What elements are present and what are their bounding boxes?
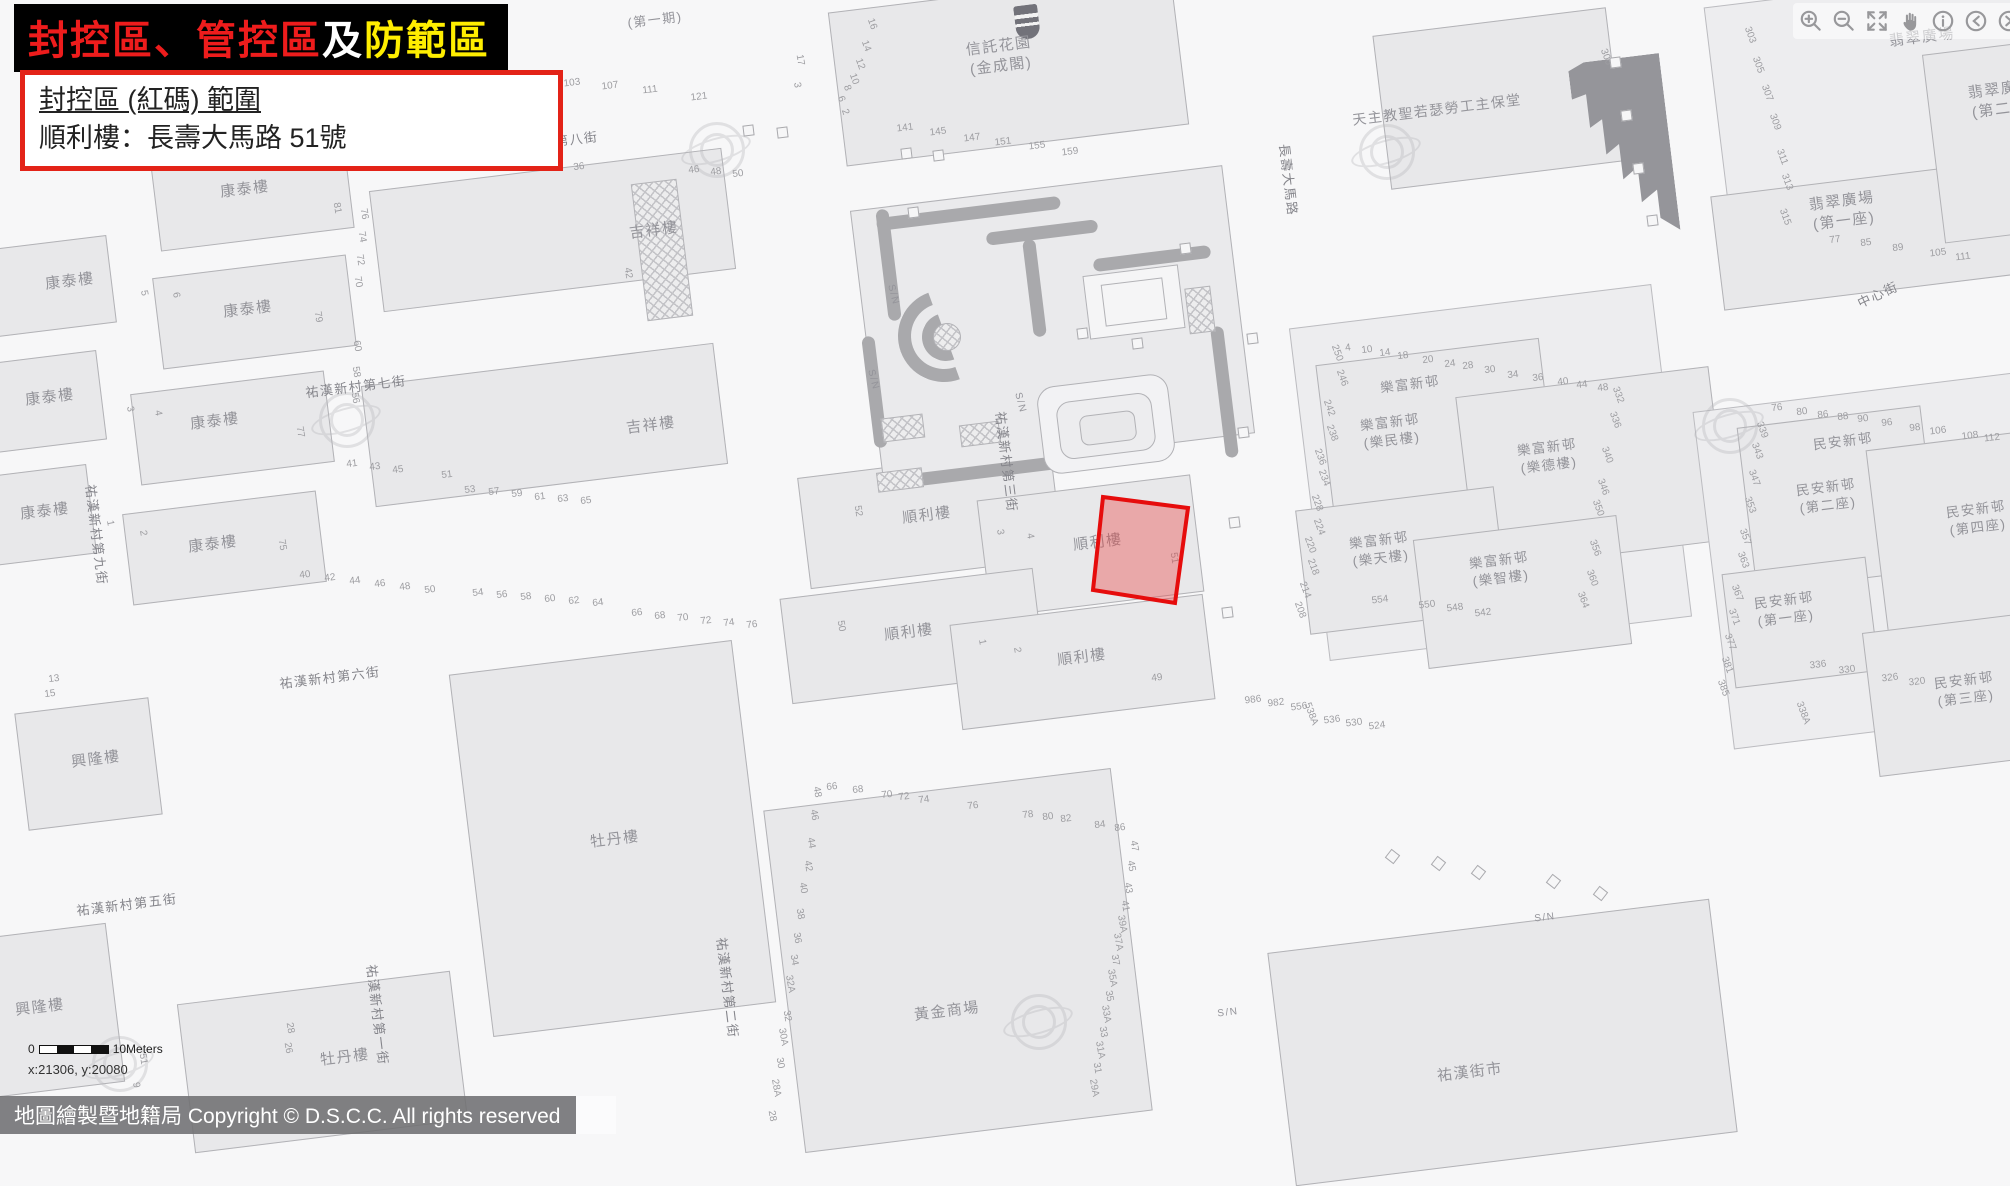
- map-toolbar: [1793, 3, 2010, 39]
- street-label: 祐漢新村第五街: [76, 890, 179, 920]
- planter-square: [1609, 56, 1621, 68]
- house-number: 52: [852, 505, 865, 518]
- house-number: 81: [331, 202, 344, 215]
- house-number: 70: [881, 789, 893, 801]
- house-number: 46: [808, 809, 821, 822]
- arrow-right-circle-icon: [1996, 8, 2010, 34]
- house-number: 64: [592, 597, 604, 609]
- house-number: 70: [677, 612, 689, 624]
- info-line-heading: 封控區 (紅碼) 範圍: [39, 81, 544, 119]
- house-number: 82: [1060, 813, 1072, 825]
- map-block-park-hatch-1: [1184, 286, 1215, 335]
- map-block-park-hatch-2: [881, 414, 926, 443]
- house-number: 36: [573, 161, 585, 173]
- house-number: 45: [1125, 860, 1138, 873]
- house-number: 40: [299, 569, 311, 581]
- house-number: 41: [346, 458, 358, 470]
- house-number: 18: [1397, 350, 1409, 362]
- house-number: 35: [1103, 990, 1116, 1003]
- house-number: 65: [580, 495, 592, 507]
- planter-square: [900, 147, 912, 159]
- house-number: 159: [1061, 146, 1079, 159]
- house-number: 66: [631, 607, 643, 619]
- house-number: 58: [520, 591, 532, 603]
- planter-square: [1646, 214, 1658, 226]
- house-number: 89: [1892, 242, 1904, 254]
- planter-square: [1076, 327, 1088, 339]
- house-number: 151: [994, 136, 1012, 149]
- pan-button[interactable]: [1896, 7, 1924, 36]
- house-number: 20: [1422, 354, 1434, 366]
- planter-square: [1593, 886, 1608, 901]
- house-number: 60: [544, 593, 556, 605]
- house-number: 48: [811, 786, 824, 799]
- house-number: 28: [766, 1110, 779, 1123]
- house-number: 98: [1909, 422, 1921, 434]
- cursor-coordinates: x:21306, y:20080: [28, 1062, 128, 1077]
- house-number: 42: [622, 267, 635, 280]
- map-block-sports-court-inner: [1101, 277, 1168, 326]
- building-label: 民安新邨 (第三座): [1933, 668, 1997, 711]
- house-number: 80: [1042, 811, 1054, 823]
- house-number: 330: [1838, 664, 1856, 677]
- house-number: 88: [1837, 411, 1849, 423]
- house-number: 13: [48, 673, 60, 685]
- scale-zero-label: 0: [28, 1042, 35, 1056]
- house-number: 26: [282, 1042, 295, 1055]
- house-number: 17: [794, 54, 807, 67]
- house-number: 50: [835, 620, 848, 633]
- house-number: 42: [802, 860, 815, 873]
- house-number: 15: [44, 688, 56, 700]
- house-number: 155: [1028, 140, 1046, 153]
- info-circle-icon: [1930, 8, 1956, 34]
- house-number: 44: [1576, 379, 1588, 391]
- street-label: 祐漢新村第六街: [279, 663, 382, 693]
- house-number: 85: [1860, 237, 1872, 249]
- planter-square: [1246, 332, 1258, 344]
- house-number: 86: [1114, 822, 1126, 834]
- house-number: 41: [1119, 900, 1132, 913]
- house-number: 78: [1022, 809, 1034, 821]
- building-label: (第一期): [627, 8, 684, 32]
- house-number: 111: [642, 84, 658, 97]
- house-number: 34: [1507, 369, 1519, 381]
- map-app: { "banner": {"segments": [ {"text": "封控區…: [0, 0, 2010, 1135]
- house-number: 76: [1771, 402, 1783, 414]
- house-number: 47: [1128, 840, 1141, 853]
- house-number: 108: [1961, 430, 1979, 443]
- building-label: 樂富新邨 (樂民樓): [1359, 410, 1423, 453]
- house-number: 30: [774, 1057, 787, 1070]
- house-number: 4: [1345, 342, 1352, 354]
- identify-button[interactable]: [1929, 7, 1957, 36]
- house-number: 1: [104, 519, 116, 526]
- house-number: 74: [356, 231, 369, 244]
- house-number: 63: [557, 493, 569, 505]
- house-number: 74: [918, 794, 930, 806]
- house-number: 548: [1446, 602, 1464, 615]
- house-number: 72: [354, 254, 367, 267]
- scale-bar-graphic: [39, 1045, 109, 1054]
- house-number: 75: [276, 539, 289, 552]
- zoom-in-button[interactable]: [1797, 7, 1825, 36]
- house-number: 141: [896, 122, 914, 135]
- house-number: 50: [732, 168, 744, 180]
- previous-extent-button[interactable]: [1962, 7, 1990, 36]
- lockdown-info-box: 封控區 (紅碼) 範圍 順利樓：長壽大馬路 51號: [20, 70, 563, 171]
- title-segment: 防範區: [364, 19, 490, 63]
- building-label: 民安新邨 (第四座): [1945, 497, 2009, 540]
- building-label: 樂富新邨 (樂德樓): [1516, 435, 1580, 478]
- planter-square: [1237, 426, 1249, 438]
- house-number: 80: [1796, 406, 1808, 418]
- house-number: 145: [929, 126, 947, 139]
- house-number: 554: [1371, 594, 1389, 607]
- building-label: 樂富新邨 (樂智樓): [1468, 548, 1532, 591]
- house-number: 524: [1368, 720, 1386, 733]
- magnifier-plus-icon: [1798, 8, 1824, 34]
- house-number: 76: [746, 619, 758, 631]
- house-number: 66: [826, 781, 838, 793]
- building-label: 樂富新邨 (樂天樓): [1348, 528, 1412, 571]
- house-number: 550: [1418, 599, 1436, 612]
- planter-square: [1632, 162, 1644, 174]
- title-segment: 封控區、管控區: [28, 19, 322, 63]
- planter-square: [776, 126, 788, 138]
- house-number: 986: [1244, 694, 1262, 707]
- dscc-watermark: [1350, 122, 1420, 178]
- house-number: 31: [1091, 1062, 1104, 1075]
- house-number: 77: [294, 426, 307, 439]
- house-number: 48: [399, 581, 411, 593]
- house-number: 76: [358, 208, 371, 221]
- house-number: 982: [1267, 697, 1285, 710]
- house-number: 57: [488, 486, 500, 498]
- building-label: 翡翠廣場 (第二座): [1967, 76, 2010, 124]
- house-number: 72: [700, 615, 712, 627]
- house-number: 48: [710, 166, 722, 178]
- house-number: 54: [472, 587, 484, 599]
- scale-max-label: 10Meters: [113, 1042, 163, 1056]
- house-number: 40: [797, 882, 810, 895]
- house-number: 326: [1881, 672, 1899, 685]
- house-number: 61: [534, 491, 546, 503]
- house-number: 24: [1444, 358, 1456, 370]
- planter-square: [932, 149, 944, 161]
- next-extent-button[interactable]: [1995, 7, 2010, 36]
- planter-square: [1221, 606, 1233, 618]
- expand-arrows-icon: [1864, 8, 1890, 34]
- dscc-watermark: [1002, 992, 1072, 1048]
- house-number: 49: [1151, 672, 1163, 684]
- house-number: 68: [852, 784, 864, 796]
- house-number: 103: [563, 77, 581, 90]
- house-number: 50: [424, 584, 436, 596]
- planter-square: [1228, 516, 1240, 528]
- planter-square: [1471, 865, 1486, 880]
- house-number: 46: [374, 578, 386, 590]
- house-number: 536: [1323, 714, 1341, 727]
- house-number: 84: [1094, 819, 1106, 831]
- map-block-market: [1267, 898, 1737, 1185]
- house-number: 79: [312, 311, 325, 324]
- house-number: 70: [352, 276, 365, 289]
- house-number: 45: [392, 464, 404, 476]
- building-label: 翡翠廣場 (第一座): [1808, 188, 1878, 236]
- house-number: 336: [1809, 659, 1827, 672]
- building-label: 民安新邨 (第一座): [1753, 588, 1817, 631]
- house-number: 42: [324, 572, 336, 584]
- house-number: 5: [138, 289, 150, 296]
- house-number: 38: [794, 908, 807, 921]
- house-number: 48: [1597, 382, 1609, 394]
- info-line-address: 順利樓：長壽大馬路 51號: [39, 119, 544, 157]
- planter-square: [1385, 849, 1400, 864]
- house-number: 10: [1361, 344, 1373, 356]
- planter-square: [1546, 874, 1561, 889]
- scale-bar: 0 10Meters: [28, 1042, 163, 1056]
- house-number: 44: [805, 837, 818, 850]
- house-number: 542: [1474, 607, 1492, 620]
- house-number: 36: [791, 932, 804, 945]
- street-label: 長壽大馬路: [1275, 143, 1301, 217]
- house-number: 56: [496, 589, 508, 601]
- title-segment: 及: [322, 19, 364, 63]
- house-number: 72: [898, 791, 910, 803]
- house-number: 77: [1829, 234, 1841, 246]
- house-number: 68: [654, 610, 666, 622]
- building-label: 信託花園 (金成閣): [965, 33, 1035, 81]
- house-number: 32: [781, 1010, 794, 1023]
- house-number: 14: [1379, 347, 1391, 359]
- house-number: 43: [1122, 882, 1135, 895]
- house-number: 86: [1817, 409, 1829, 421]
- house-number: 105: [1929, 247, 1947, 260]
- planter-square: [1131, 337, 1143, 349]
- house-number: 44: [349, 575, 361, 587]
- planter-square: [1179, 242, 1191, 254]
- house-number: 33: [1097, 1026, 1110, 1039]
- planter-square: [1620, 109, 1632, 121]
- full-extent-button[interactable]: [1863, 7, 1891, 36]
- house-number: 30: [1484, 364, 1496, 376]
- house-number: 107: [601, 80, 619, 93]
- house-number: 28: [284, 1022, 297, 1035]
- house-number: 53: [464, 484, 476, 496]
- house-number: 111: [1955, 251, 1971, 264]
- zoom-out-button[interactable]: [1830, 7, 1858, 36]
- map-block-lefu-lezhi: [1412, 515, 1631, 669]
- house-number: 28A: [769, 1078, 783, 1097]
- planter-square: [742, 124, 754, 136]
- magnifier-minus-icon: [1831, 8, 1857, 34]
- house-number: 51: [1168, 552, 1181, 565]
- house-number: 112: [1983, 432, 2000, 445]
- house-number: 59: [511, 488, 523, 500]
- house-number: 320: [1908, 676, 1926, 689]
- page-title: 封控區、管控區及防範區: [14, 4, 508, 72]
- house-number: 60: [351, 340, 364, 353]
- house-number: 40: [1557, 376, 1569, 388]
- house-number: 30A: [776, 1027, 790, 1046]
- planter-square: [907, 206, 919, 218]
- house-number: 51: [441, 469, 453, 481]
- house-number: 106: [1929, 425, 1947, 438]
- house-number: 74: [723, 617, 735, 629]
- house-number: 96: [1881, 417, 1893, 429]
- house-number: 3: [791, 81, 803, 88]
- house-number: 43: [369, 461, 381, 473]
- house-number: 56: [349, 392, 362, 405]
- house-number: 46: [688, 164, 700, 176]
- house-number: 37: [1109, 954, 1122, 967]
- house-number: 34: [788, 954, 801, 967]
- attribution-end-cap[interactable]: [576, 1096, 616, 1134]
- house-number: 36: [1532, 372, 1544, 384]
- house-number: 121: [690, 91, 708, 104]
- house-number: 530: [1345, 717, 1363, 730]
- house-number: 90: [1857, 413, 1869, 425]
- attribution-bar: 地圖繪製暨地籍局 Copyright © D.S.C.C. All rights…: [0, 1096, 576, 1134]
- building-label: S/N: [1217, 1005, 1240, 1021]
- house-number: 147: [963, 132, 981, 145]
- hand-icon: [1897, 8, 1923, 34]
- building-label: S/N: [1534, 910, 1557, 926]
- house-number: 62: [568, 595, 580, 607]
- building-label: 民安新邨 (第二座): [1795, 475, 1859, 518]
- house-number: 28: [1462, 360, 1474, 372]
- planter-square: [1431, 856, 1446, 871]
- arrow-left-circle-icon: [1963, 8, 1989, 34]
- house-number: 58: [350, 366, 363, 379]
- house-number: 76: [967, 800, 979, 812]
- house-number: 538A: [1302, 701, 1320, 727]
